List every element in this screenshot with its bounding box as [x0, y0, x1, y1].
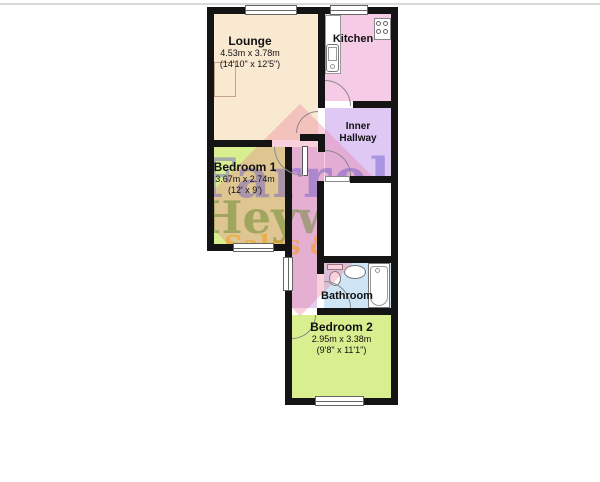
bedroom1-floor — [214, 147, 285, 244]
bedroom1-window — [233, 243, 274, 252]
basin-icon — [344, 265, 366, 279]
wall — [318, 134, 325, 152]
wall — [207, 7, 214, 251]
bathtub-faucet-icon — [375, 268, 380, 273]
hob-burner-icon — [376, 29, 381, 34]
bedroom2-window — [315, 396, 364, 406]
wall — [207, 140, 272, 147]
alcove-recess — [214, 62, 236, 97]
wall — [285, 308, 292, 405]
wall — [317, 256, 398, 263]
kitchen-window — [330, 5, 368, 15]
wall — [207, 7, 398, 14]
hob-burner-icon — [383, 21, 388, 26]
wall — [317, 308, 391, 315]
wall — [353, 101, 391, 108]
corridor-doorway-floor — [317, 152, 324, 181]
corridor-window — [283, 257, 293, 291]
top-rule — [0, 3, 600, 5]
wall — [350, 176, 398, 183]
hallway-door-leaf — [325, 176, 350, 182]
lounge-window — [245, 5, 297, 15]
kitchen-faucet-icon — [330, 64, 335, 69]
toilet-cistern-icon — [327, 264, 343, 270]
wall — [318, 14, 325, 108]
hob-burner-icon — [383, 29, 388, 34]
floorplan: Farrell Heywood Sales & Le Lounge 4.53m … — [0, 0, 600, 482]
wall — [391, 7, 398, 405]
kitchen-sink-bowl-icon — [328, 47, 337, 61]
hob-burner-icon — [376, 21, 381, 26]
